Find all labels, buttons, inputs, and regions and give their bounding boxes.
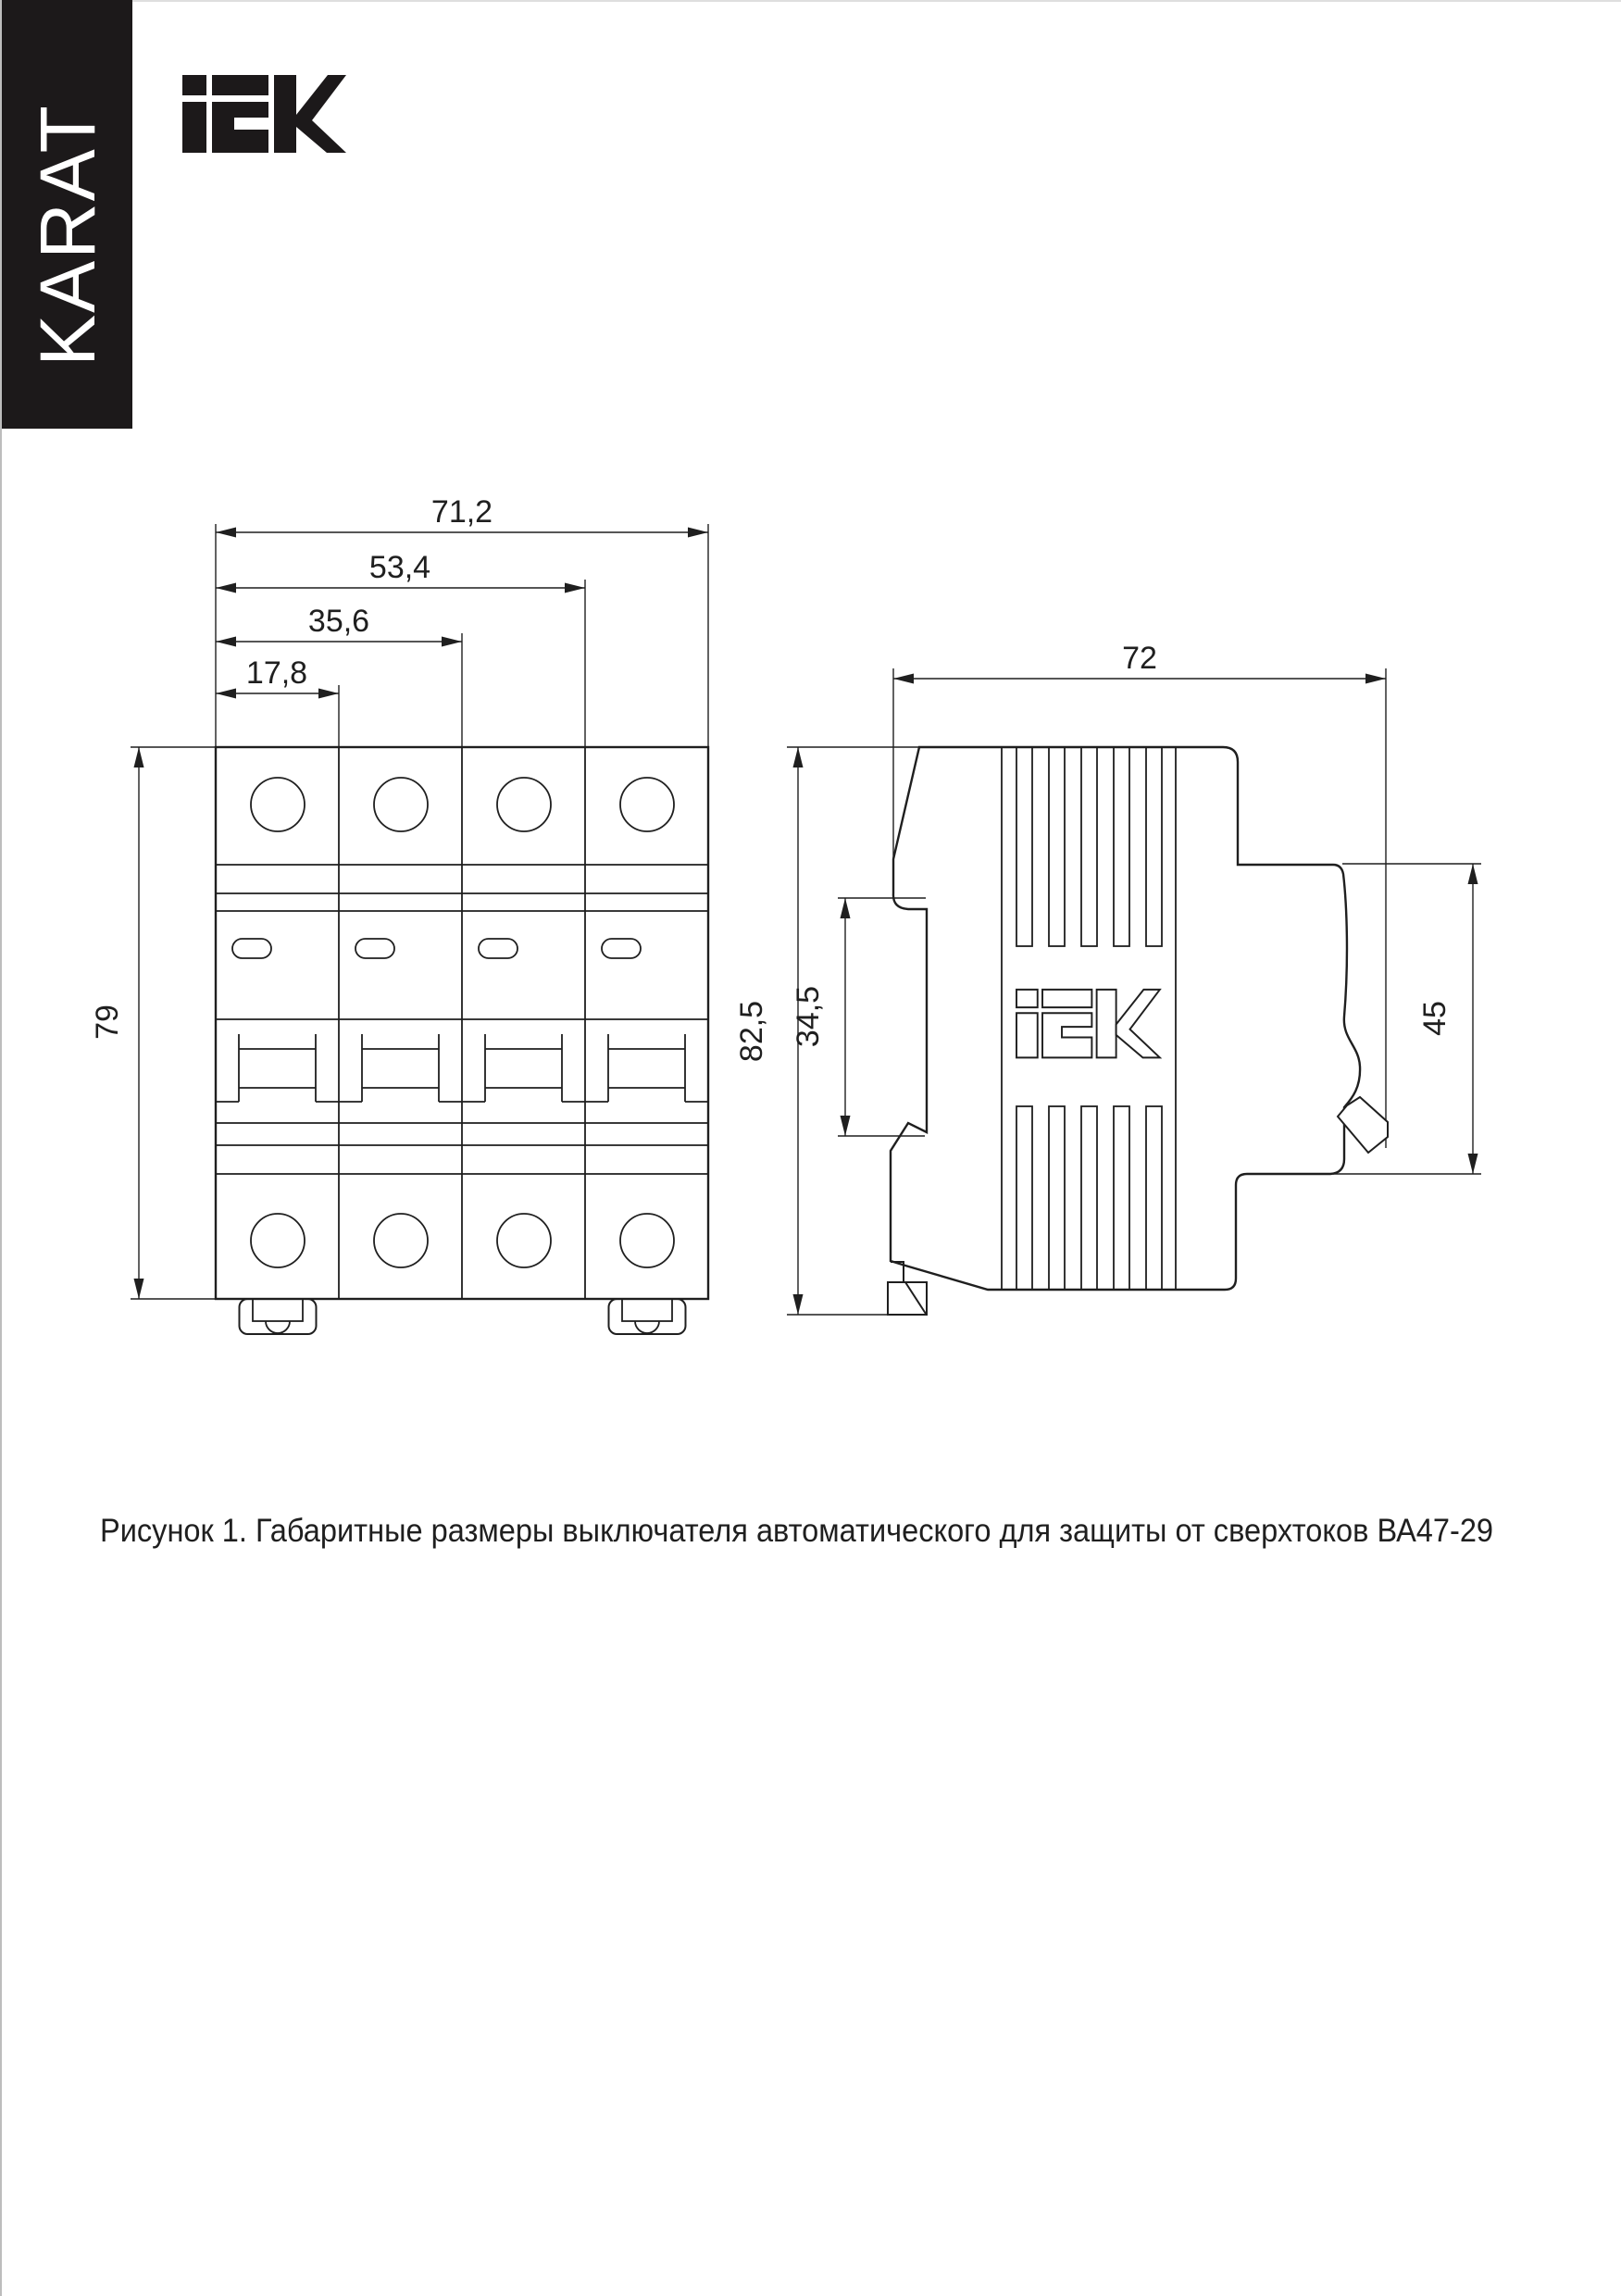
side-dimension-arrows xyxy=(793,674,1478,1316)
front-dimension-arrows xyxy=(134,528,709,1300)
dim-one-module: 17,8 xyxy=(246,655,307,691)
dim-front-face-height: 45 xyxy=(1417,1001,1453,1036)
catalog-page: KARAT xyxy=(0,0,1621,2296)
dim-total-height: 82,5 xyxy=(734,1001,769,1062)
front-din-clips xyxy=(240,1299,686,1334)
front-view-dimensions: 71,2 53,4 35,6 17,8 79 xyxy=(90,494,708,1299)
dim-three-modules: 53,4 xyxy=(369,550,430,585)
dim-two-modules: 35,6 xyxy=(308,604,369,639)
technical-drawing: 71,2 53,4 35,6 17,8 79 xyxy=(0,0,1621,2296)
side-ribs-top xyxy=(1016,747,1162,946)
front-pole-dividers xyxy=(339,747,585,1299)
front-marking-windows xyxy=(232,939,641,958)
dim-front-height: 79 xyxy=(90,1004,125,1040)
iek-embossed-logo xyxy=(1016,990,1160,1058)
dim-rail-recess: 34,5 xyxy=(791,986,826,1047)
side-ribs-bottom xyxy=(1016,1106,1162,1290)
front-dimension-lines xyxy=(139,532,708,1299)
side-dimension-lines xyxy=(798,679,1473,1315)
dim-total-width: 71,2 xyxy=(431,494,493,530)
dim-depth: 72 xyxy=(1122,641,1157,676)
side-view xyxy=(787,668,1481,1315)
figure-caption: Рисунок 1. Габаритные размеры выключател… xyxy=(100,1513,1493,1550)
front-view xyxy=(216,747,708,1334)
